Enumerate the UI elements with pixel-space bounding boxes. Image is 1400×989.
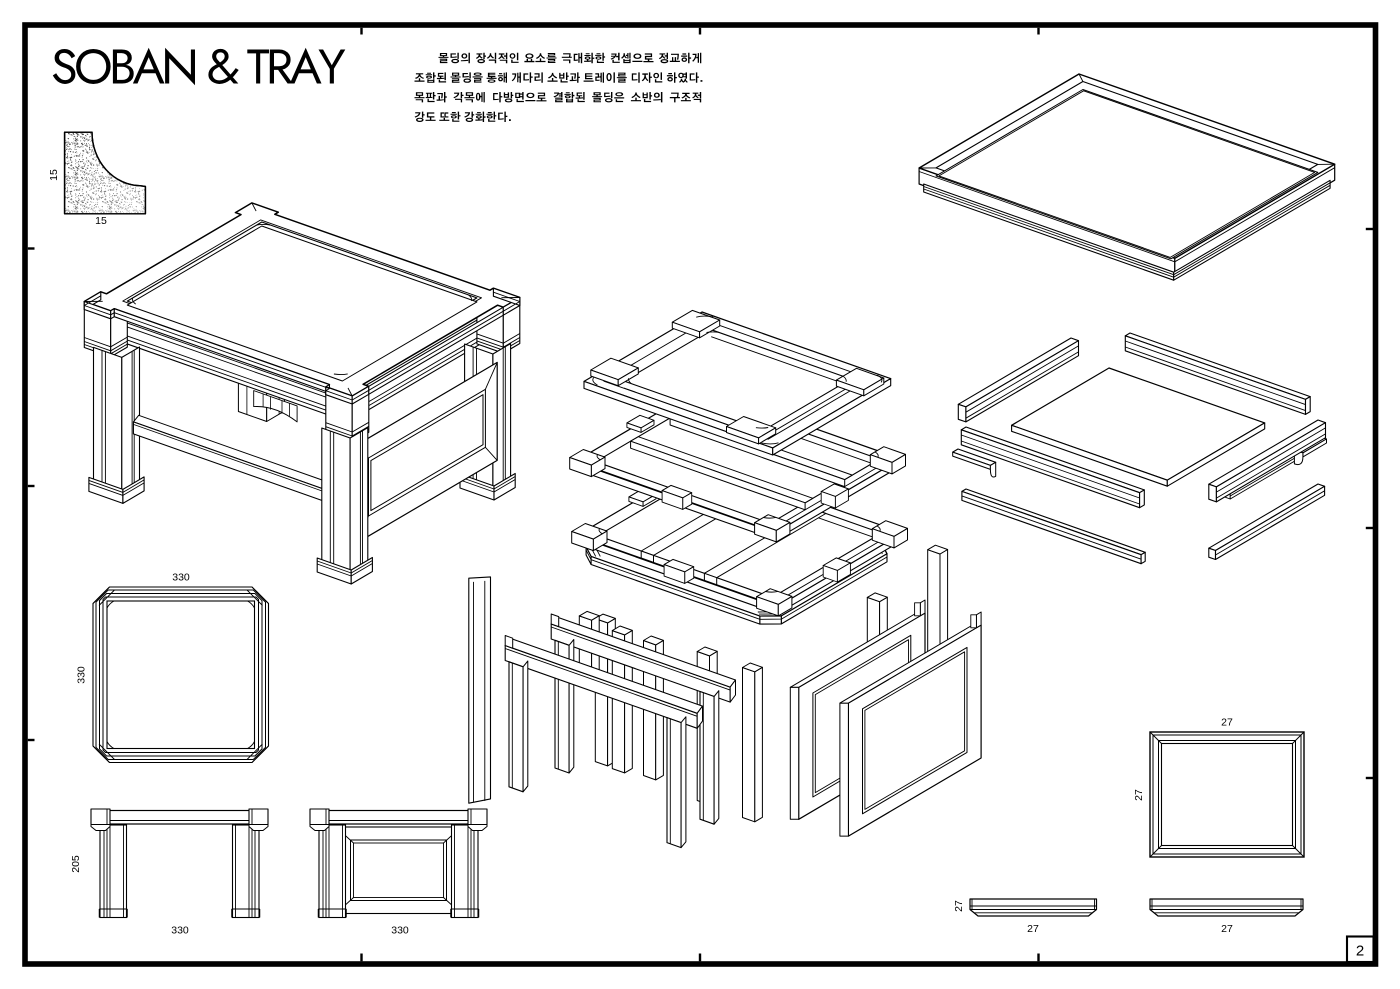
svg-text:330: 330 bbox=[172, 572, 190, 584]
svg-text:27: 27 bbox=[953, 900, 965, 912]
svg-text:27: 27 bbox=[1221, 923, 1233, 935]
svg-text:330: 330 bbox=[391, 925, 409, 937]
svg-text:330: 330 bbox=[171, 925, 189, 937]
svg-text:27: 27 bbox=[1133, 789, 1145, 801]
svg-text:205: 205 bbox=[70, 855, 82, 873]
svg-text:27: 27 bbox=[1221, 717, 1233, 729]
svg-text:15: 15 bbox=[95, 215, 107, 227]
svg-text:330: 330 bbox=[76, 666, 88, 684]
svg-text:2: 2 bbox=[1356, 943, 1364, 960]
svg-text:15: 15 bbox=[48, 169, 60, 181]
svg-text:27: 27 bbox=[1027, 923, 1039, 935]
